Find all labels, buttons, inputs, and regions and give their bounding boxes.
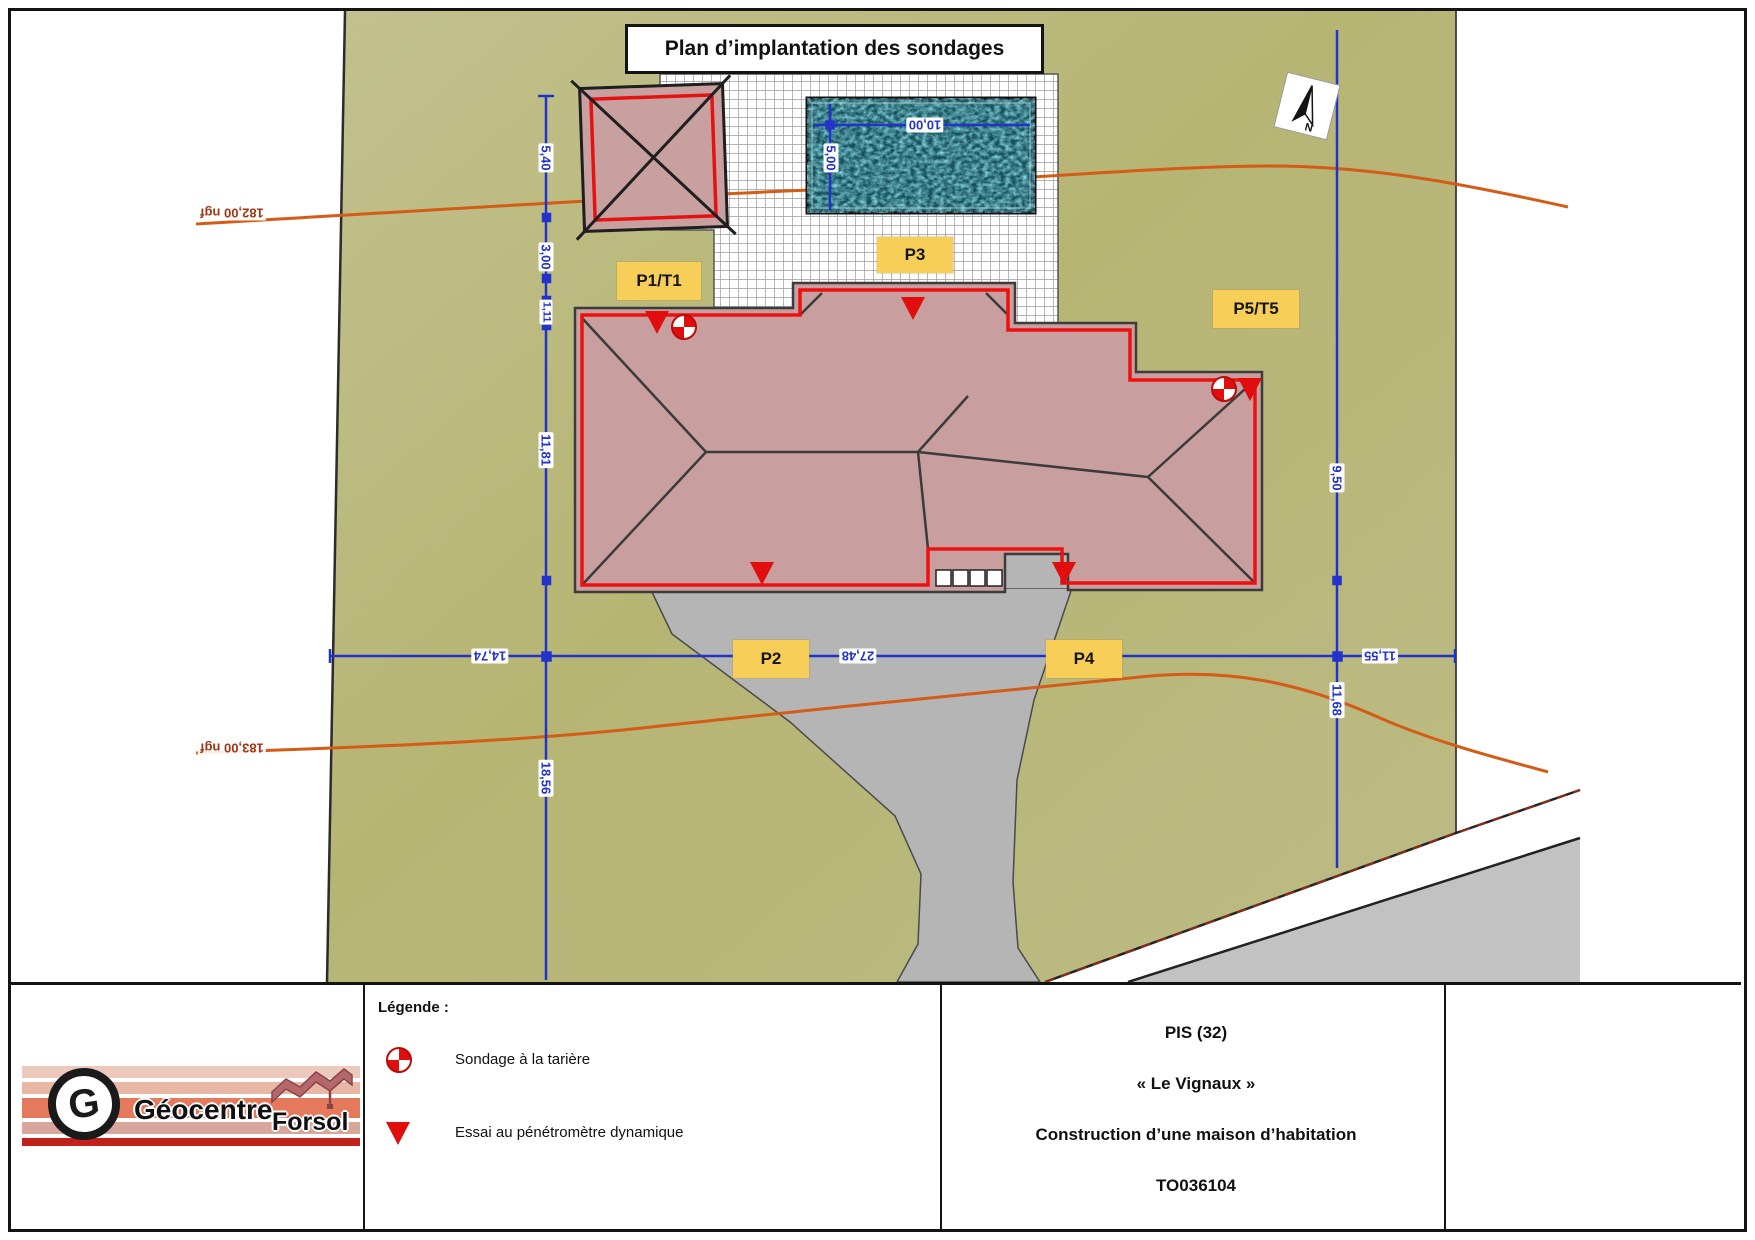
dim-left-5-40: 5,40 xyxy=(539,143,554,172)
penetrometer-marker-p1 xyxy=(645,311,669,334)
label-p3-text: P3 xyxy=(905,245,926,265)
label-p5t5: P5/T5 xyxy=(1213,290,1299,328)
site-plan-drawing: N xyxy=(0,0,1755,982)
auger-marker-t5 xyxy=(1211,376,1237,402)
penetrometer-marker-p5 xyxy=(1238,378,1262,401)
dim-right-9-50: 9,50 xyxy=(1330,463,1345,492)
label-p1t1: P1/T1 xyxy=(617,262,701,300)
project-description: Construction d’une maison d’habitation xyxy=(940,1125,1452,1145)
logo-stripe xyxy=(22,1138,360,1146)
project-reference: TO036104 xyxy=(940,1176,1452,1196)
forsol-wordmark: Forsol xyxy=(272,1108,348,1137)
penetrometer-marker-p4 xyxy=(1052,562,1076,585)
geocentre-wordmark: Géocentre xyxy=(134,1094,273,1126)
legend-heading: Légende : xyxy=(378,999,449,1016)
contour-label-183: 183,00 ngf xyxy=(198,741,266,756)
page-title-text: Plan d’implantation des sondages xyxy=(665,37,1005,61)
project-name: « Le Vignaux » xyxy=(940,1074,1452,1094)
geocentre-monogram-letter: G xyxy=(65,1080,102,1129)
dim-pool-10-00: 10,00 xyxy=(907,118,944,133)
label-p5t5-text: P5/T5 xyxy=(1233,299,1278,319)
dim-pool-5-00: 5,00 xyxy=(824,143,839,172)
annex-building xyxy=(571,75,735,239)
penetrometer-legend-icon xyxy=(386,1122,410,1145)
dim-right-11-68: 11,68 xyxy=(1330,682,1345,718)
forsol-icon xyxy=(270,1066,354,1110)
plan-document-page: N Plan d’implantation des sondages P1/T1… xyxy=(0,0,1755,1240)
legend-auger-label: Sondage à la tarière xyxy=(455,1051,590,1068)
auger-marker-t1 xyxy=(671,314,697,340)
panel-divider-1 xyxy=(363,985,365,1232)
label-p2: P2 xyxy=(733,640,809,678)
label-p1t1-text: P1/T1 xyxy=(636,271,681,291)
dim-bottom-14-74: 14,74 xyxy=(472,649,509,664)
project-location: PIS (32) xyxy=(940,1023,1452,1043)
page-title: Plan d’implantation des sondages xyxy=(625,24,1044,74)
swimming-pool xyxy=(807,98,1035,213)
dim-bottom-27-48: 27,48 xyxy=(840,649,877,664)
legend-penetrometer-label: Essai au pénétromètre dynamique xyxy=(455,1124,683,1141)
dim-bottom-11-55: 11,55 xyxy=(1362,649,1398,664)
label-p4: P4 xyxy=(1046,640,1122,678)
auger-legend-icon xyxy=(386,1047,412,1073)
dim-left-11-81: 11,81 xyxy=(539,432,554,468)
company-logo: G Géocentre Forsol xyxy=(22,1066,360,1154)
dim-left-1-11: 1,11 xyxy=(540,300,553,325)
contour-label-182: 182,00 ngf xyxy=(198,206,266,221)
label-p3: P3 xyxy=(877,237,953,273)
penetrometer-marker-p3 xyxy=(901,297,925,320)
penetrometer-marker-p2 xyxy=(750,562,774,585)
dim-left-18-56: 18,56 xyxy=(539,760,554,797)
label-p2-text: P2 xyxy=(761,649,782,669)
title-block-panel: Légende : Sondage à la tarière Essai au … xyxy=(8,982,1741,1232)
dim-left-3-00: 3,00 xyxy=(539,242,554,271)
label-p4-text: P4 xyxy=(1074,649,1095,669)
